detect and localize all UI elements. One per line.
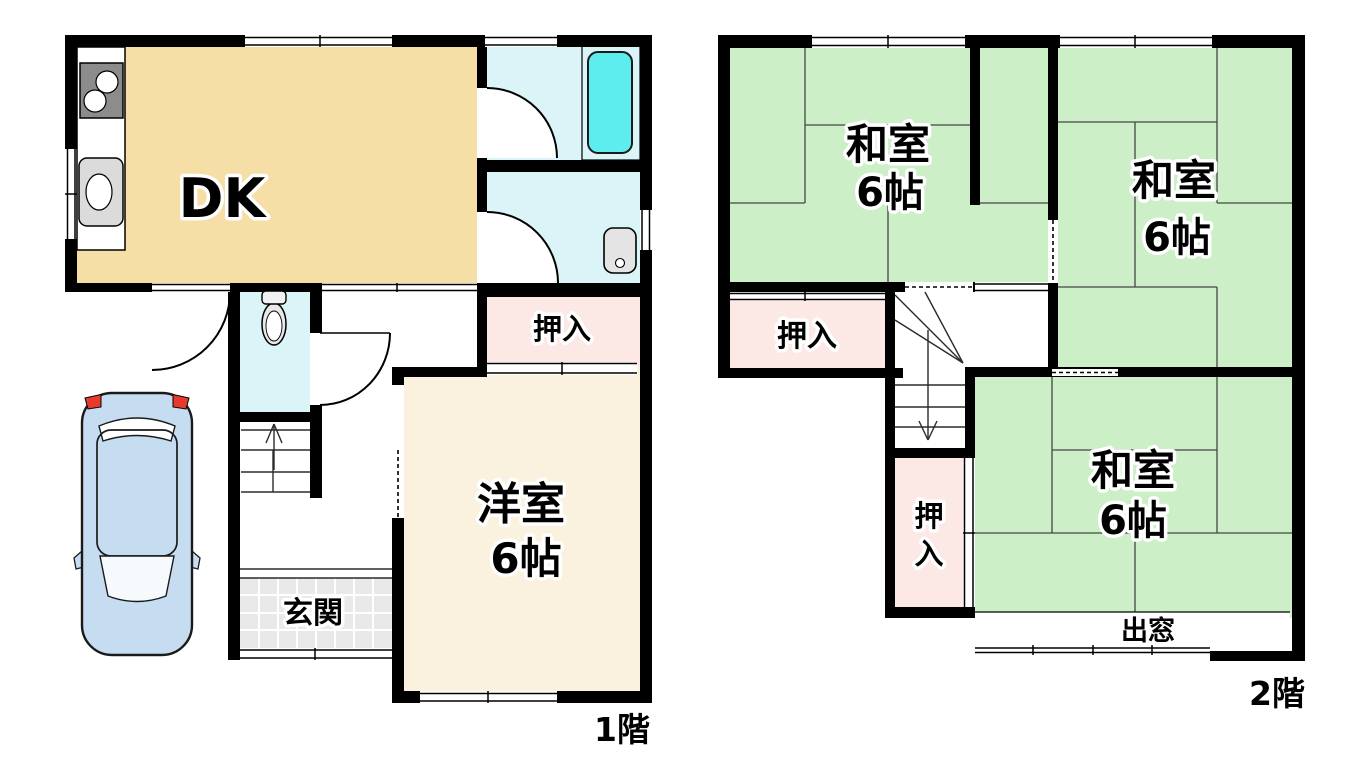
tatami-nw-label: 和室	[846, 120, 930, 169]
floor2-plan: 和室 6帖 和室 6帖 和室 6帖 押入 押 入 出窓 2階	[718, 35, 1305, 713]
western-room-size: 6帖	[490, 534, 561, 583]
landing-threshold	[975, 282, 1048, 292]
dk-label: DK	[179, 167, 268, 230]
floor1-plan: DK 洋室 6帖 押入 玄関 1階	[65, 35, 652, 749]
washroom-door-opening	[477, 212, 487, 283]
stair-top-fusuma	[905, 282, 973, 292]
floor1-label: 1階	[594, 710, 650, 749]
dk-top-window	[245, 35, 392, 47]
floor-plan-drawing: DK 洋室 6帖 押入 玄関 1階	[0, 0, 1362, 780]
kitchen-fixtures	[77, 47, 125, 250]
entrance-door	[240, 648, 392, 660]
tatami-s-label: 和室	[1091, 446, 1175, 495]
tatami-ne-label: 和室	[1132, 156, 1216, 205]
kitchen-backdoor-arc	[152, 292, 230, 370]
closet-w-sliding-front	[963, 458, 975, 607]
dk-hall-sliding-door	[322, 283, 477, 292]
tatami-s-size: 6帖	[1099, 498, 1167, 544]
washroom-right-window	[640, 210, 652, 250]
western-room-label: 洋室	[477, 479, 565, 530]
western-bottom-window	[420, 691, 557, 703]
tatami-ne-floor	[1048, 35, 1305, 377]
closet-n-label: 押入	[777, 319, 837, 354]
stairs-up-arrow-icon	[266, 424, 282, 470]
svg-text:入: 入	[914, 537, 943, 571]
tatami-nw-ne-fusuma	[1048, 220, 1058, 283]
car-top-view-icon	[74, 393, 200, 655]
closet-sliding-front-1f	[487, 362, 637, 375]
bath-top-window	[485, 35, 557, 47]
closet-label-1f: 押入	[533, 312, 591, 346]
floor-plan-page: DK 洋室 6帖 押入 玄関 1階	[0, 0, 1362, 780]
tatami-ne-window	[1060, 35, 1212, 48]
tatami-ne-s-fusuma	[1052, 369, 1118, 376]
stairwell-2f	[895, 367, 965, 458]
toilet-door-swing	[320, 333, 390, 405]
bath-door-opening	[477, 88, 487, 158]
tatami-nw-window	[812, 35, 965, 48]
svg-text:押: 押	[914, 499, 943, 533]
kitchen-left-window	[65, 149, 77, 239]
dk-room-floor	[65, 35, 487, 292]
entrance-label: 玄関	[283, 596, 343, 631]
stair-landing-2f	[895, 283, 1048, 367]
bathtub-icon	[588, 52, 632, 153]
floor2-label: 2階	[1249, 674, 1305, 713]
tatami-ne-size: 6帖	[1143, 215, 1211, 261]
closet-w-floor	[885, 448, 975, 618]
bay-window-label: 出窓	[1121, 615, 1175, 647]
staircase-1f	[241, 424, 310, 492]
tatami-nw-size: 6帖	[856, 170, 924, 216]
closet-n-sliding-front	[730, 292, 885, 301]
kitchen-backdoor-opening	[152, 283, 230, 292]
western-room-entry-opening	[392, 385, 404, 518]
